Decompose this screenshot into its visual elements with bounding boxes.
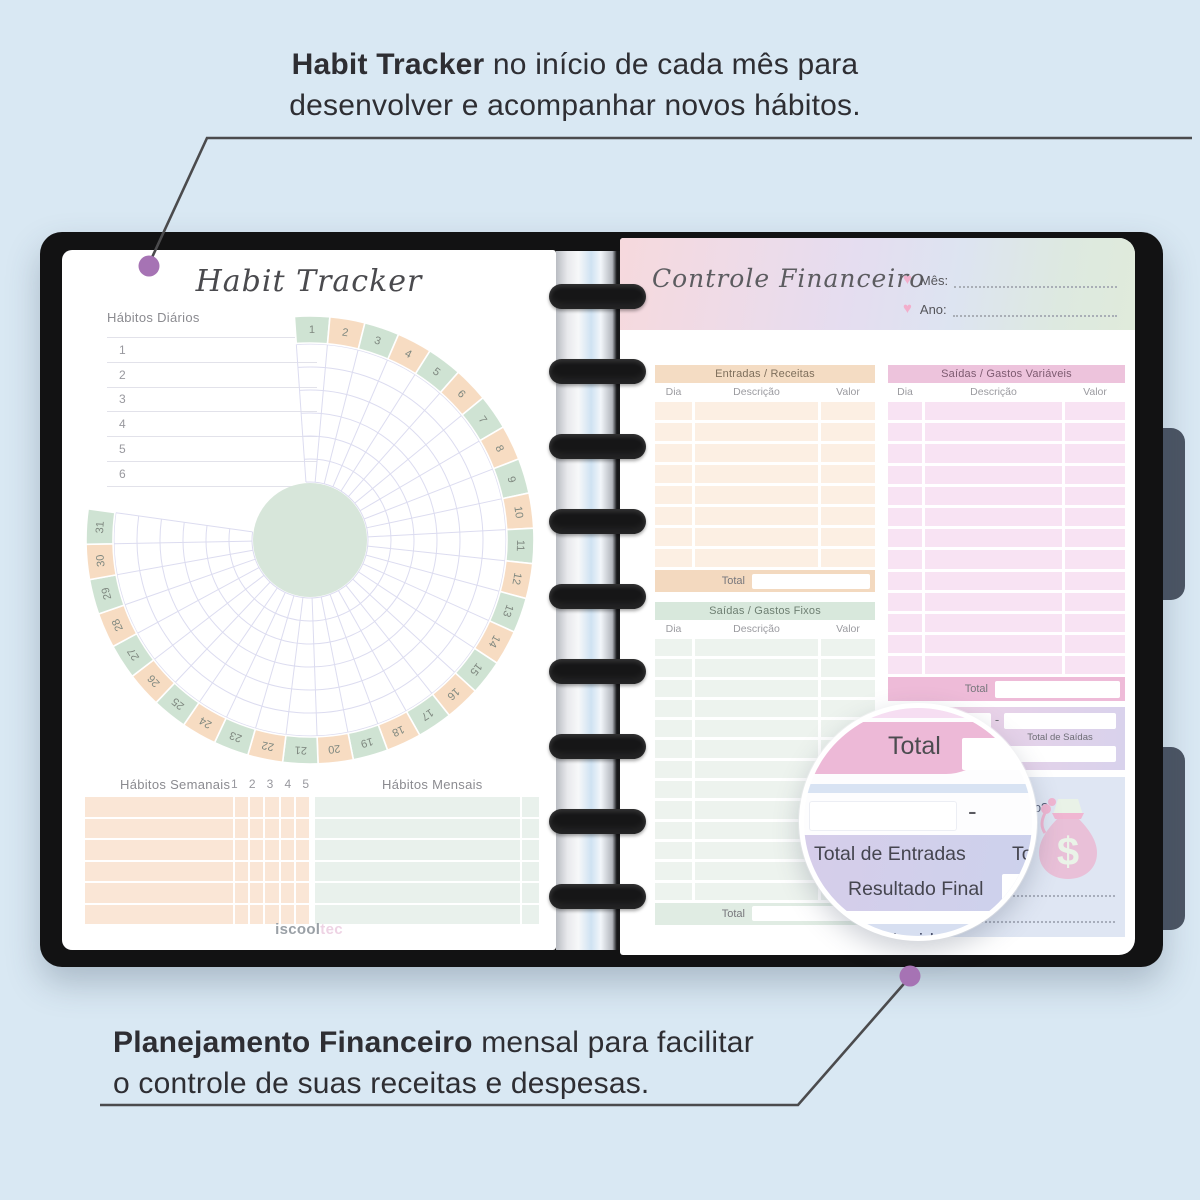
table-cell [888,466,922,484]
table-cell [925,423,1062,441]
habit-tracker-wheel: 1234567891011121314151617181920212223242… [84,314,536,766]
table-cell [925,550,1062,568]
monthly-habits-grid [315,797,539,924]
magnified-table-row [799,708,1037,718]
tracker-day-number: 30 [94,554,107,567]
product-image: Habit Tracker no início de cada mês para… [0,0,1200,1200]
monthly-habit-cell [315,883,520,903]
binding-disc [549,659,646,684]
table-cell [655,549,692,567]
table-cell [821,486,875,504]
table-row [888,402,1125,420]
table-cell [1065,423,1125,441]
weekly-habit-cell [85,819,233,839]
table-row [655,444,875,462]
table-cell [655,659,692,676]
monthly-check-cell [522,862,539,882]
magnified-strip [804,911,1037,924]
table-cell [695,842,818,859]
habit-tracker-page: Habit Tracker Hábitos Diários 123456 123… [62,250,556,950]
table-cell [888,614,922,632]
binding-disc [549,284,646,309]
table-cell [655,680,692,697]
heart-icon: ♥ [903,272,912,288]
magnified-total-field [962,738,1037,770]
table-cell [695,528,818,546]
tracker-day-number: 31 [94,521,107,534]
monthly-check-cell [522,840,539,860]
binding-disc [549,734,646,759]
table-row [655,659,875,676]
table-cell [1065,635,1125,653]
weekly-column-number: 2 [249,777,256,791]
table-cell [925,508,1062,526]
right-page-title: Controle Financeiro [652,264,925,293]
weekly-check-cell [235,883,248,903]
table-row [888,614,1125,632]
entradas-total-field [752,574,870,589]
table-cell [695,700,818,717]
weekly-check-cell [250,819,263,839]
table-cell [1065,402,1125,420]
table-cell [695,639,818,656]
table-cell [655,822,692,839]
fixos-table-headers: Dia Descrição Valor [655,621,875,636]
table-cell [821,423,875,441]
weekly-habits-grid [85,797,309,924]
table-cell [1065,466,1125,484]
year-fill-line [953,303,1117,317]
weekly-column-number: 3 [267,777,274,791]
table-row [888,423,1125,441]
monthly-check-cell [522,883,539,903]
monthly-habit-cell [315,840,520,860]
table-cell [821,444,875,462]
magnified-minus-sign: - [968,796,977,827]
table-cell [655,761,692,778]
fixos-table-title: Saídas / Gastos Fixos [655,602,875,620]
entradas-table-rows [655,402,875,567]
table-cell [695,549,818,567]
tracker-day-number: 11 [514,540,526,552]
table-cell [925,466,1062,484]
year-label: Ano: [920,302,947,317]
table-row [655,507,875,525]
table-cell [888,572,922,590]
table-cell [888,550,922,568]
tracker-day-number: 1 [309,324,315,336]
weekly-check-cell [265,819,278,839]
variaveis-total-row: Total [888,677,1125,701]
table-row [655,402,875,420]
magnified-entradas-field [810,802,956,830]
variaveis-table-headers: Dia Descrição Valor [888,384,1125,399]
table-cell [655,801,692,818]
money-bag-icon: $ [1031,791,1105,883]
weekly-check-cell [235,819,248,839]
weekly-check-cell [296,862,309,882]
table-cell [655,465,692,483]
weekly-check-cell [235,862,248,882]
table-cell [695,862,818,879]
weekly-habits-columns: 12345 [231,777,309,791]
table-cell [925,572,1062,590]
tracker-day-number: 10 [511,505,525,519]
table-cell [1065,656,1125,674]
table-cell [655,639,692,656]
table-cell [655,700,692,717]
monthly-habit-cell [315,862,520,882]
weekly-habits-label: Hábitos Semanais [120,777,230,792]
callout-dot-bottom [900,966,921,987]
binding-disc [549,509,646,534]
table-cell [888,444,922,462]
annotation-top: Habit Tracker no início de cada mês para… [175,44,975,126]
table-cell [655,842,692,859]
annotation-bottom-line2: o controle de suas receitas e despesas. [113,1063,893,1104]
weekly-check-cell [250,797,263,817]
brand-logo: iscooltec [62,921,556,938]
table-row [888,572,1125,590]
weekly-check-cell [296,883,309,903]
table-cell [695,507,818,525]
variaveis-table-title: Saídas / Gastos Variáveis [888,365,1125,383]
table-cell [888,402,922,420]
binding-disc [549,884,646,909]
table-cell [1065,572,1125,590]
table-row [888,508,1125,526]
table-cell [655,720,692,737]
finance-header-band: Controle Financeiro ♥ Mês: ♥ Ano: [620,238,1135,330]
tracker-day-number: 12 [509,572,523,586]
annotation-top-line1: Habit Tracker no início de cada mês para [175,44,975,85]
weekly-check-cell [265,840,278,860]
binding-disc [549,434,646,459]
binding-disc [549,584,646,609]
annotation-bottom: Planejamento Financeiro mensal para faci… [113,1022,893,1104]
table-row [655,639,875,656]
table-cell [925,444,1062,462]
year-row: ♥ Ano: [903,297,1117,317]
table-cell [821,528,875,546]
table-cell [821,507,875,525]
monthly-check-cell [522,797,539,817]
table-cell [888,423,922,441]
binding-disc [549,809,646,834]
weekly-check-cell [250,862,263,882]
weekly-check-cell [265,883,278,903]
left-page-title: Habit Tracker [62,264,556,299]
entradas-table-headers: Dia Descrição Valor [655,384,875,399]
table-cell [821,402,875,420]
table-cell [655,528,692,546]
weekly-check-cell [235,797,248,817]
table-cell [821,465,875,483]
weekly-check-cell [281,862,294,882]
month-label: Mês: [920,273,948,288]
table-cell [925,614,1062,632]
table-cell [1065,550,1125,568]
table-cell [1065,529,1125,547]
table-row [655,465,875,483]
table-cell [1065,614,1125,632]
weekly-column-number: 4 [284,777,291,791]
table-cell [925,402,1062,420]
weekly-check-cell [281,883,294,903]
weekly-check-cell [265,862,278,882]
annotation-bottom-line1: Planejamento Financeiro mensal para faci… [113,1022,893,1063]
table-row [655,528,875,546]
table-cell [821,659,875,676]
table-row [655,549,875,567]
table-row [888,593,1125,611]
weekly-check-cell [265,797,278,817]
annotation-bottom-highlight: Planejamento Financeiro [113,1026,473,1059]
table-row [888,487,1125,505]
monthly-check-cell [522,819,539,839]
table-cell [925,635,1062,653]
magnified-strip [804,784,1037,793]
magnified-resultado-label: Resultado Final [848,878,984,901]
magnified-entradas-label: Total de Entradas [814,843,966,866]
annotation-top-highlight: Habit Tracker [292,48,485,81]
table-cell [695,423,818,441]
weekly-column-number: 5 [302,777,309,791]
table-cell [695,402,818,420]
monthly-habit-cell [315,797,520,817]
table-row [655,486,875,504]
weekly-habit-cell [85,883,233,903]
table-row [888,550,1125,568]
table-row [888,466,1125,484]
month-row: ♥ Mês: [903,268,1117,288]
table-cell [888,593,922,611]
table-row [655,680,875,697]
magnified-total-label: Total [888,732,941,761]
magnified-resultado-field [1002,874,1037,902]
weekly-check-cell [250,883,263,903]
weekly-habit-cell [85,840,233,860]
table-cell [925,487,1062,505]
monthly-habit-cell [315,819,520,839]
table-cell [655,402,692,420]
table-cell [695,465,818,483]
table-cell [695,720,818,737]
table-cell [655,740,692,757]
entradas-table-title: Entradas / Receitas [655,365,875,383]
table-cell [888,529,922,547]
weekly-habit-cell [85,862,233,882]
annotation-top-line2: desenvolver e acompanhar novos hábitos. [175,85,975,126]
table-cell [888,656,922,674]
table-cell [695,659,818,676]
table-cell [925,656,1062,674]
tracker-day-number: 22 [261,739,275,753]
table-cell [695,680,818,697]
weekly-check-cell [296,797,309,817]
binding-disc [549,359,646,384]
weekly-check-cell [235,840,248,860]
table-cell [695,486,818,504]
tracker-day-number: 21 [295,744,308,757]
table-cell [821,680,875,697]
heart-icon: ♥ [903,301,912,317]
table-cell [695,740,818,757]
dollar-glyph: $ [1057,830,1079,874]
table-cell [695,781,818,798]
variaveis-total-field [995,681,1120,698]
monthly-habits-label: Hábitos Mensais [382,777,483,792]
table-cell [655,781,692,798]
table-row [888,529,1125,547]
table-cell [888,635,922,653]
table-cell [821,639,875,656]
magnifier-circle: Total - Total de Entradas Total de Saída… [799,703,1037,941]
variaveis-table-rows [888,402,1125,674]
table-row [655,423,875,441]
tracker-center-circle [253,483,367,597]
table-cell [888,487,922,505]
table-cell [655,862,692,879]
table-cell [1065,444,1125,462]
weekly-check-cell [281,819,294,839]
table-row [888,635,1125,653]
table-cell [1065,593,1125,611]
table-cell [655,507,692,525]
weekly-check-cell [281,840,294,860]
entradas-total-row: Total [655,570,875,592]
table-cell [695,761,818,778]
weekly-habit-cell [85,797,233,817]
table-cell [655,423,692,441]
table-cell [888,508,922,526]
weekly-check-cell [281,797,294,817]
table-cell [695,444,818,462]
month-fill-line [954,274,1117,288]
table-row [888,656,1125,674]
table-cell [1065,487,1125,505]
table-cell [1065,508,1125,526]
weekly-check-cell [296,840,309,860]
table-cell [655,486,692,504]
table-row [888,444,1125,462]
weekly-check-cell [250,840,263,860]
weekly-column-number: 1 [231,777,238,791]
month-year-block: ♥ Mês: ♥ Ano: [903,268,1117,326]
table-cell [925,529,1062,547]
table-cell [925,593,1062,611]
table-cell [695,883,818,900]
table-cell [655,883,692,900]
table-cell [821,549,875,567]
table-cell [655,444,692,462]
tracker-day-number: 20 [327,742,341,755]
weekly-check-cell [296,819,309,839]
